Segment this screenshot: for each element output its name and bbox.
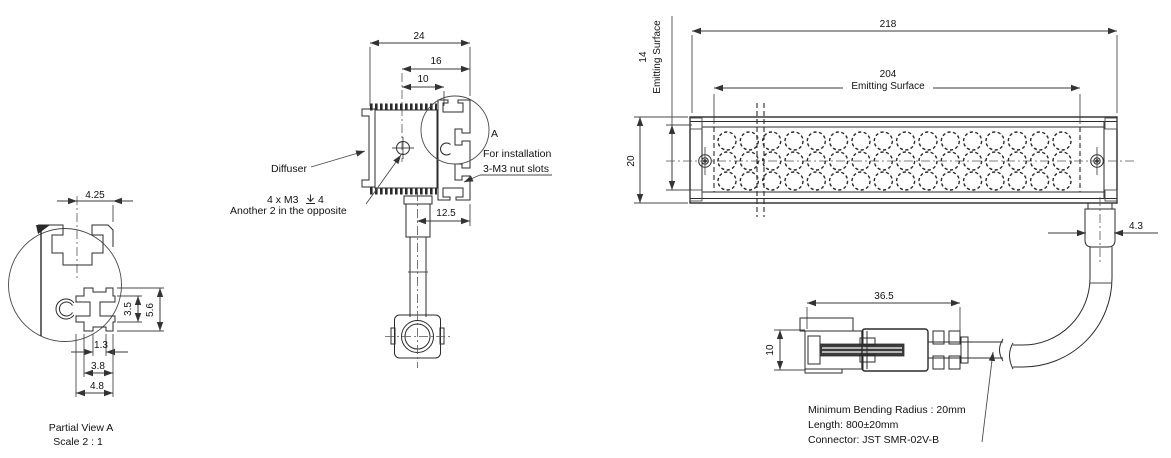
corner-bracket <box>690 118 702 129</box>
corner-bracket <box>1105 190 1117 201</box>
dim-text: 10 <box>765 344 776 356</box>
nut-slot-column <box>438 100 470 200</box>
led-circle <box>740 172 758 190</box>
dim-text: 204 <box>880 69 897 80</box>
cable-break-end <box>1010 343 1014 369</box>
led-circle <box>1053 172 1071 190</box>
led-circle <box>986 172 1004 190</box>
led-circle <box>763 132 781 150</box>
cable-view: 36.5 10 Minimum <box>765 291 1003 446</box>
diffuser-label: Diffuser <box>271 163 307 175</box>
strain-relief-ribs <box>928 331 968 369</box>
emitting-surface-label-h: Emitting Surface <box>851 81 925 92</box>
partial-view-a: 4.25 3.5 5.6 1.3 3.8 <box>9 190 165 448</box>
cable-flange <box>404 196 432 204</box>
note-connector: Connector: JST SMR-02V-B <box>808 434 939 446</box>
connector-lip <box>805 369 842 373</box>
cable-notes: Minimum Bending Radius : 20mm Length: 80… <box>808 404 966 446</box>
diffuser-plate <box>362 109 375 187</box>
led-circle <box>964 172 982 190</box>
dim-14: 14 Emitting Surface <box>638 16 692 190</box>
connector-latch <box>800 318 853 331</box>
led-circle <box>830 172 848 190</box>
detail-a-label: A <box>491 128 498 140</box>
partial-view-caption: Partial View A <box>49 422 114 434</box>
cable-leader <box>982 352 993 442</box>
led-circle <box>740 132 758 150</box>
note-bending-radius: Minimum Bending Radius : 20mm <box>808 404 966 416</box>
led-circle <box>785 172 803 190</box>
nut-slot-screw <box>441 143 451 155</box>
led-circle <box>852 172 870 190</box>
led-circle <box>718 172 736 190</box>
drawing-canvas: 4.25 3.5 5.6 1.3 3.8 <box>0 0 1171 458</box>
led-circle <box>919 172 937 190</box>
dim-204: 204 Emitting Surface <box>714 69 1080 124</box>
diffuser-leader <box>311 151 365 167</box>
led-circle <box>830 132 848 150</box>
led-circle <box>1053 132 1071 150</box>
partial-view-scale: Scale 2 : 1 <box>53 436 103 448</box>
led-circle <box>941 172 959 190</box>
led-circle <box>874 132 892 150</box>
led-circle <box>941 132 959 150</box>
dim-text: 5.6 <box>145 303 156 317</box>
led-circle <box>852 132 870 150</box>
dim-12-5: 12.5 <box>417 204 470 226</box>
c-ring-inner <box>59 302 72 316</box>
end-view: 24 16 10 A Diffuser 4 x M3 4 Ano <box>230 31 552 368</box>
cable-curve-outer <box>1013 247 1112 367</box>
front-view: 218 204 Emitting Surface 14 Emitting Sur… <box>626 16 1158 369</box>
dim-text: 3.5 <box>123 302 134 316</box>
dim-text: 16 <box>430 56 442 67</box>
install-note: For installation 3-M3 nut slots <box>464 148 552 182</box>
dim-text: 4.25 <box>85 190 105 201</box>
led-circle <box>1008 172 1026 190</box>
led-circle <box>1031 172 1049 190</box>
led-circle <box>807 132 825 150</box>
dim-text: 4.3 <box>1129 221 1143 232</box>
partial-view-boundary-circle <box>9 229 122 342</box>
led-circle <box>763 172 781 190</box>
dim-36-5: 36.5 <box>807 291 960 331</box>
led-circle <box>785 132 803 150</box>
dim-4-3: 4.3 <box>1048 221 1158 233</box>
nut-profile <box>76 288 115 331</box>
depth-symbol-icon <box>306 195 315 204</box>
led-circle <box>1008 132 1026 150</box>
led-circle <box>986 132 1004 150</box>
thread-leader <box>366 155 401 204</box>
dim-3-5: 3.5 <box>117 296 142 322</box>
dim-text: 3.8 <box>91 361 105 372</box>
thread-note-line2: Another 2 in the opposite <box>230 205 347 217</box>
led-circle <box>718 132 736 150</box>
corner-bracket <box>690 190 702 201</box>
led-circle <box>919 132 937 150</box>
led-circle <box>1031 132 1049 150</box>
install-note-line1: For installation <box>483 148 551 160</box>
led-circle <box>897 172 915 190</box>
cable-stub <box>968 339 1003 361</box>
dim-text: 10 <box>417 74 429 85</box>
dim-text: 24 <box>413 31 425 42</box>
led-circle <box>897 132 915 150</box>
body-outline <box>375 110 437 188</box>
note-length: Length: 800±20mm <box>808 419 899 431</box>
dim-text: 36.5 <box>874 291 894 302</box>
dim-text: 20 <box>626 155 637 167</box>
dim-218: 218 <box>692 19 1117 113</box>
corner-bracket <box>1105 118 1117 129</box>
dim-4-25: 4.25 <box>57 190 133 222</box>
dim-16: 16 <box>402 56 470 69</box>
led-circle <box>874 172 892 190</box>
dim-10-connector: 10 <box>765 330 805 370</box>
dim-text: 14 <box>638 51 649 63</box>
dim-text: 1.3 <box>94 340 108 351</box>
led-circle <box>964 132 982 150</box>
dim-text: 4.8 <box>90 381 104 392</box>
emitting-surface-label-v: Emitting Surface <box>652 20 663 94</box>
cable-curve-inner <box>1013 247 1090 345</box>
dim-text: 12.5 <box>436 208 456 219</box>
led-circle <box>807 172 825 190</box>
dim-text: 218 <box>880 19 897 30</box>
dim-1-3: 1.3 <box>71 334 128 356</box>
install-note-line2: 3-M3 nut slots <box>483 163 549 175</box>
